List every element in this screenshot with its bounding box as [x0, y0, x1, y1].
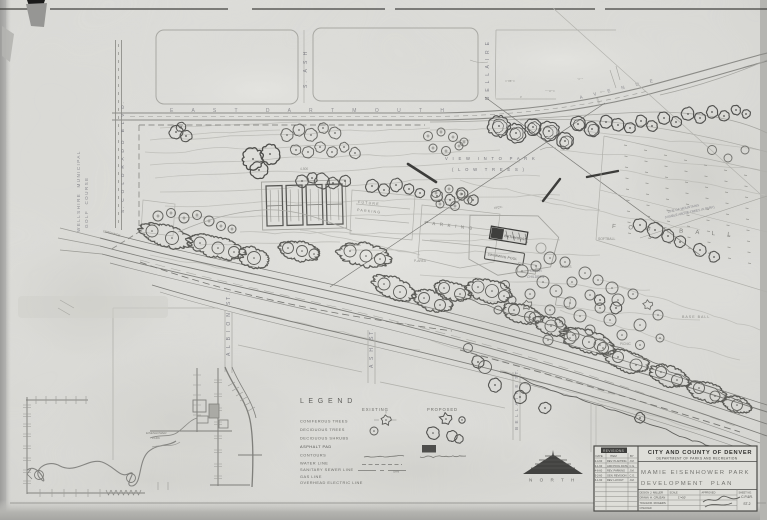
- svg-text:EXISTING: EXISTING: [362, 407, 389, 412]
- svg-text:S. A S H: S. A S H: [303, 50, 309, 88]
- svg-text:H. CRUZAN: H. CRUZAN: [650, 496, 665, 500]
- svg-text:P-AREA: P-AREA: [414, 259, 427, 263]
- svg-text:PARK: PARK: [152, 436, 160, 440]
- svg-text:C.G.: C.G.: [630, 473, 636, 477]
- svg-text:5-2-60: 5-2-60: [595, 473, 603, 477]
- svg-text:PLAY: PLAY: [470, 297, 479, 301]
- svg-text:v: v: [520, 95, 522, 99]
- svg-text:C.G.: C.G.: [630, 464, 636, 468]
- svg-text:SANITARY SEWER LINE: SANITARY SEWER LINE: [300, 467, 354, 472]
- svg-text:WATER LINE: WATER LINE: [300, 461, 328, 466]
- svg-text:R. ROGERS: R. ROGERS: [650, 501, 666, 505]
- svg-text:J.M.: J.M.: [630, 478, 635, 482]
- svg-text:2-4-60: 2-4-60: [595, 459, 603, 463]
- svg-text:E A S T D A R T M O U T H: E A S T D A R T M O U T H: [170, 108, 453, 114]
- svg-text:ASPHALT PAD: ASPHALT PAD: [300, 444, 332, 449]
- svg-text:GAMES: GAMES: [560, 265, 572, 269]
- svg-text:6-1-60: 6-1-60: [595, 478, 603, 482]
- svg-text:4-500: 4-500: [300, 167, 308, 171]
- svg-text:OVERHEAD ELECTRIC LINE: OVERHEAD ELECTRIC LINE: [300, 480, 363, 485]
- svg-text:CONTOURS: CONTOURS: [300, 453, 326, 458]
- svg-text:1″=50′: 1″=50′: [678, 496, 686, 500]
- svg-text:REVISIONS: REVISIONS: [603, 449, 625, 453]
- svg-text:4-6-60: 4-6-60: [595, 469, 603, 473]
- svg-text:DESIGN: DESIGN: [640, 492, 650, 495]
- svg-text:DEVELOPMENT PLAN: DEVELOPMENT PLAN: [641, 481, 733, 487]
- svg-text:GOLF COURSE: GOLF COURSE: [84, 176, 89, 228]
- svg-text:EISENHOWER: EISENHOWER: [146, 431, 167, 435]
- svg-text:J.M.: J.M.: [630, 469, 635, 473]
- svg-text:CITY AND COUNTY OF DENVER: CITY AND COUNTY OF DENVER: [648, 450, 752, 456]
- svg-text:MAMIE EISENHOWER PARK: MAMIE EISENHOWER PARK: [641, 470, 750, 476]
- svg-text:SAN: SAN: [393, 470, 399, 474]
- svg-text:WELLSHIRE MUNICIPAL: WELLSHIRE MUNICIPAL: [76, 150, 81, 232]
- svg-text:PROPOSED: PROPOSED: [427, 407, 458, 412]
- svg-text:ST-2: ST-2: [743, 502, 750, 506]
- svg-text:BASE BALL: BASE BALL: [682, 315, 710, 319]
- svg-text:BY: BY: [630, 454, 634, 458]
- svg-text:SOFTBALL: SOFTBALL: [598, 237, 615, 241]
- svg-text:=rc=·: =rc=·: [494, 204, 504, 210]
- svg-text:REV. LAYOUT: REV. LAYOUT: [607, 478, 624, 482]
- svg-text:DEPARTMENT OF PARKS AND RECREA: DEPARTMENT OF PARKS AND RECREATION: [657, 457, 738, 461]
- svg-text:TRACED: TRACED: [640, 502, 650, 505]
- svg-text:GEN. REVISION: GEN. REVISION: [607, 473, 627, 477]
- svg-text:B E L L A I R E: B E L L A I R E: [485, 40, 491, 100]
- svg-text:·=·~: ·=·~: [577, 77, 583, 81]
- svg-text:REV. PLANTING: REV. PLANTING: [607, 459, 627, 463]
- svg-text:( L O W T R E E S ): ( L O W T R E E S ): [452, 167, 526, 172]
- svg-text:DRAWN: DRAWN: [640, 497, 650, 500]
- svg-text:N O R T H: N O R T H: [529, 478, 577, 483]
- svg-text:CHECKED: CHECKED: [640, 507, 652, 510]
- svg-text:PICNIC: PICNIC: [620, 342, 632, 346]
- svg-text:=·ve·=: =·ve·=: [505, 79, 515, 83]
- svg-text:DECIDUOUS TREES: DECIDUOUS TREES: [300, 427, 345, 432]
- svg-text:S. C O L O R A D O B L V D.: S. C O L O R A D O B L V D.: [120, 100, 126, 213]
- svg-text:ADD POOL DATA: ADD POOL DATA: [607, 464, 628, 468]
- svg-text:GAS LINE: GAS LINE: [300, 474, 322, 479]
- svg-text:V I E W I N T O P A R K: V I E W I N T O P A R K: [445, 156, 537, 161]
- svg-text:A L B I O N ST.: A L B I O N ST.: [226, 292, 232, 356]
- svg-text:3-1-60: 3-1-60: [595, 464, 603, 468]
- svg-text:~··c~=: ~··c~=: [545, 89, 555, 93]
- svg-text:L E G E N D: L E G E N D: [300, 398, 354, 405]
- svg-text:A S H ST.: A S H ST.: [369, 327, 375, 368]
- svg-text:REV. PARKING: REV. PARKING: [607, 469, 625, 473]
- svg-text:SCALE: SCALE: [670, 492, 679, 495]
- svg-text:DECIDUOUS SHRUBS: DECIDUOUS SHRUBS: [300, 436, 349, 441]
- svg-text:WALK: WALK: [352, 243, 362, 247]
- svg-text:DATE: DATE: [596, 454, 603, 458]
- svg-text:C.P.&R.: C.P.&R.: [741, 495, 753, 499]
- svg-text:J. MILLER: J. MILLER: [650, 491, 663, 495]
- svg-text:ITEM: ITEM: [610, 454, 617, 458]
- svg-text:APPROVED: APPROVED: [702, 492, 716, 495]
- svg-text:J.M.: J.M.: [630, 459, 635, 463]
- svg-text:=~·: =~·: [600, 90, 605, 94]
- svg-text:CONIFEROUS TREES: CONIFEROUS TREES: [300, 419, 348, 424]
